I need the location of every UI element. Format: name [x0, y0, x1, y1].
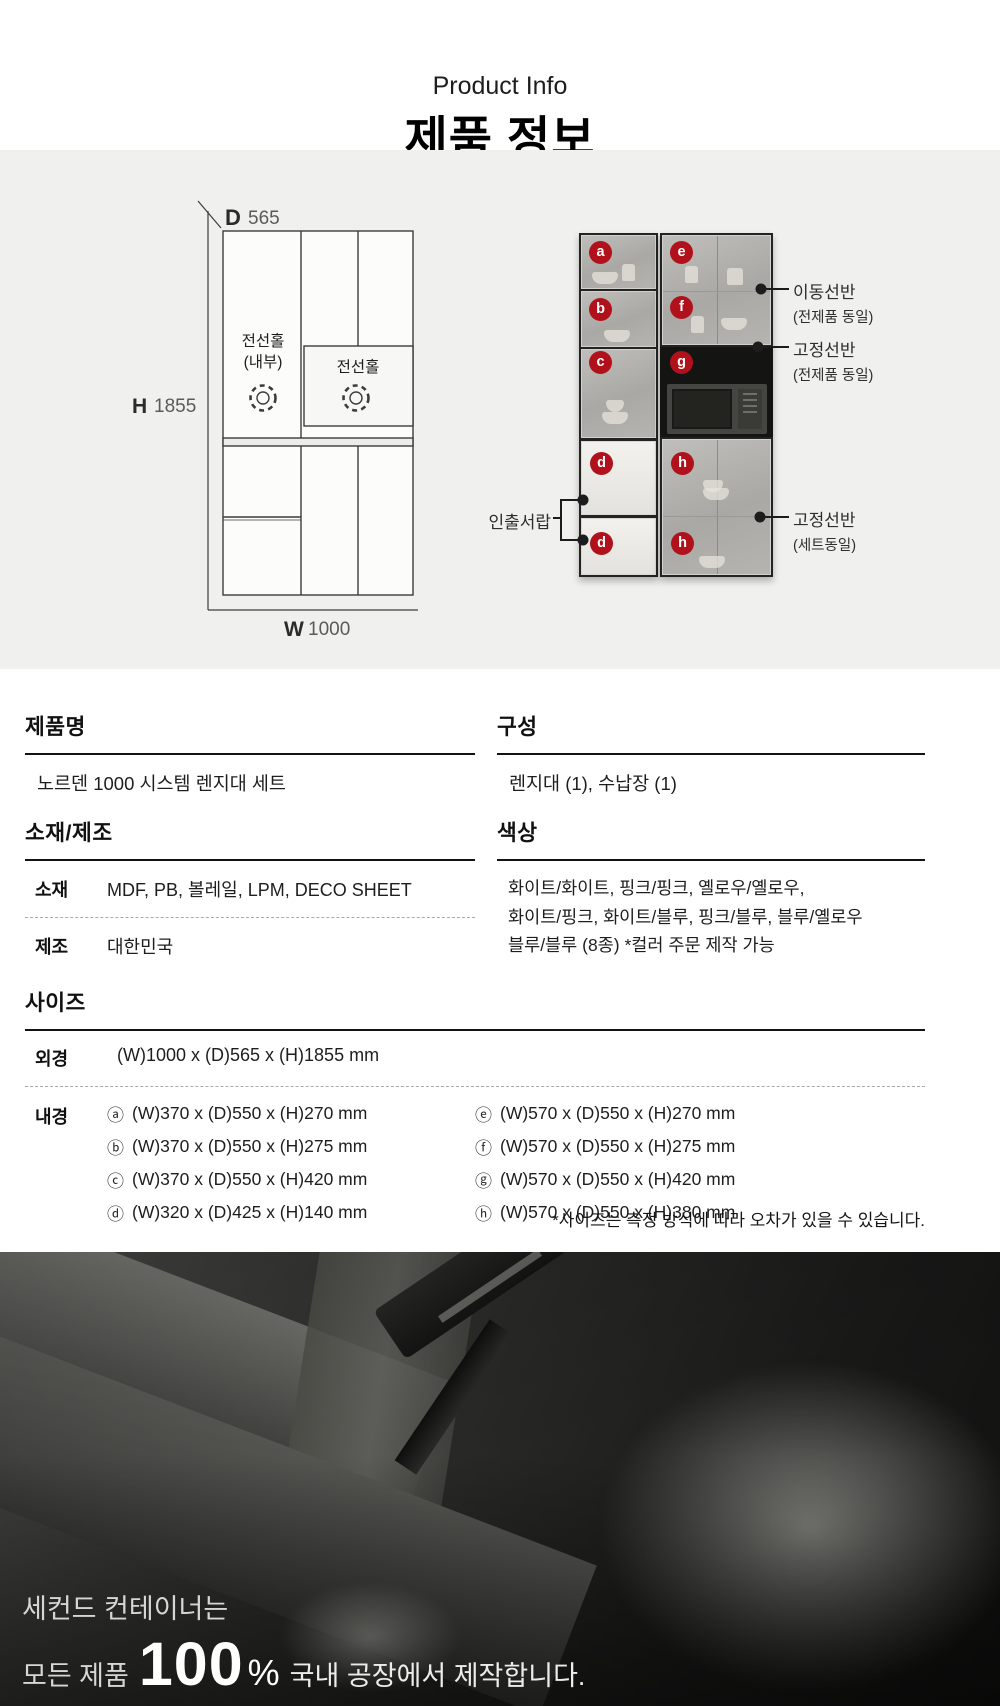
callout-fixed-shelf-title: 고정선반 — [793, 336, 873, 361]
mark-f: ⓕ — [475, 1134, 492, 1159]
callout-fixed-shelf-2-title: 고정선반 — [793, 506, 856, 531]
factory-copy: 세컨드 컨테이너는 모든 제품 100 % 국내 공장에서 제작합니다. — [22, 1587, 585, 1695]
inner-size-row-g: ⓖ (W)570 x (D)550 x (H)420 mm — [475, 1167, 843, 1192]
outer-size-value: (W)1000 x (D)565 x (H)1855 mm — [117, 1045, 379, 1066]
manufacture-row: 제조 대한민국 — [25, 918, 475, 974]
color-line-3: 블루/블루 (8종) *컬러 주문 제작 가능 — [508, 931, 925, 960]
callout-fixed-shelf-sub: (전제품 동일) — [793, 364, 873, 385]
callout-moving-shelf-title: 이동선반 — [793, 278, 873, 303]
material-row-value: MDF, PB, 볼레일, LPM, DECO SHEET — [107, 876, 412, 902]
section-material: 소재/제조 소재 MDF, PB, 볼레일, LPM, DECO SHEET 제… — [25, 816, 475, 974]
inner-size-row-a: ⓐ (W)370 x (D)550 x (H)270 mm — [107, 1101, 475, 1126]
factory-photo: 세컨드 컨테이너는 모든 제품 100 % 국내 공장에서 제작합니다. — [0, 1252, 1000, 1706]
hero-band: D 565 H 1855 W 1000 전선홀 (내부) 전선홀 — [0, 150, 1000, 669]
inner-size-row-e: ⓔ (W)570 x (D)550 x (H)270 mm — [475, 1101, 843, 1126]
mark-e: ⓔ — [475, 1101, 492, 1126]
callout-lines — [0, 150, 1000, 669]
manufacture-row-value: 대한민국 — [107, 933, 173, 959]
callout-fixed-shelf-2: 고정선반 (세트동일) — [793, 506, 856, 555]
color-line-1: 화이트/화이트, 핑크/핑크, 옐로우/옐로우, — [508, 874, 925, 903]
outer-size-label: 외경 — [35, 1045, 117, 1071]
section-product-name: 제품명 노르덴 1000 시스템 렌지대 세트 — [25, 710, 475, 796]
size-disclaimer: *사이즈는 측정 방식에 따라 오차가 있을 수 있습니다. — [25, 1206, 925, 1231]
product-name-heading: 제품명 — [25, 710, 475, 755]
manufacture-row-label: 제조 — [35, 933, 107, 959]
factory-copy-line2: 모든 제품 100 % 국내 공장에서 제작합니다. — [22, 1634, 585, 1695]
product-info-page: Product Info 제품 정보 — [0, 0, 1000, 1706]
composition-value: 렌지대 (1), 수납장 (1) — [509, 770, 925, 796]
material-row-label: 소재 — [35, 876, 107, 902]
callout-fixed-shelf: 고정선반 (전제품 동일) — [793, 336, 873, 385]
factory-copy-suffix: 국내 공장에서 제작합니다. — [290, 1654, 586, 1693]
factory-copy-prefix: 모든 제품 — [22, 1654, 129, 1693]
material-heading: 소재/제조 — [25, 816, 475, 861]
color-values: 화이트/화이트, 핑크/핑크, 옐로우/옐로우, 화이트/핑크, 화이트/블루,… — [508, 874, 925, 960]
color-line-2: 화이트/핑크, 화이트/블루, 핑크/블루, 블루/옐로우 — [508, 903, 925, 932]
material-row: 소재 MDF, PB, 볼레일, LPM, DECO SHEET — [25, 861, 475, 918]
callout-drawer: 인출서랍 — [430, 508, 551, 533]
color-heading: 색상 — [497, 816, 925, 861]
inner-size-row-f: ⓕ (W)570 x (D)550 x (H)275 mm — [475, 1134, 843, 1159]
factory-copy-number: 100 — [139, 1634, 244, 1695]
factory-copy-line1: 세컨드 컨테이너는 — [22, 1587, 585, 1626]
callout-moving-shelf: 이동선반 (전제품 동일) — [793, 278, 873, 327]
mark-a: ⓐ — [107, 1101, 124, 1126]
mark-b: ⓑ — [107, 1134, 124, 1159]
composition-heading: 구성 — [497, 710, 925, 755]
mark-g: ⓖ — [475, 1167, 492, 1192]
mark-c: ⓒ — [107, 1167, 124, 1192]
product-name-value: 노르덴 1000 시스템 렌지대 세트 — [37, 770, 475, 796]
section-color: 색상 화이트/화이트, 핑크/핑크, 옐로우/옐로우, 화이트/핑크, 화이트/… — [497, 816, 925, 960]
section-composition: 구성 렌지대 (1), 수납장 (1) — [497, 710, 925, 796]
outer-size-row: 외경 (W)1000 x (D)565 x (H)1855 mm — [25, 1031, 925, 1087]
callout-fixed-shelf-2-sub: (세트동일) — [793, 534, 856, 555]
inner-size-row-b: ⓑ (W)370 x (D)550 x (H)275 mm — [107, 1134, 475, 1159]
section-size: 사이즈 외경 (W)1000 x (D)565 x (H)1855 mm 내경 … — [25, 986, 925, 1233]
size-heading: 사이즈 — [25, 986, 925, 1031]
factory-copy-percent: % — [248, 1652, 280, 1694]
inner-size-row-c: ⓒ (W)370 x (D)550 x (H)420 mm — [107, 1167, 475, 1192]
header-eyebrow: Product Info — [0, 72, 1000, 101]
callout-moving-shelf-sub: (전제품 동일) — [793, 306, 873, 327]
